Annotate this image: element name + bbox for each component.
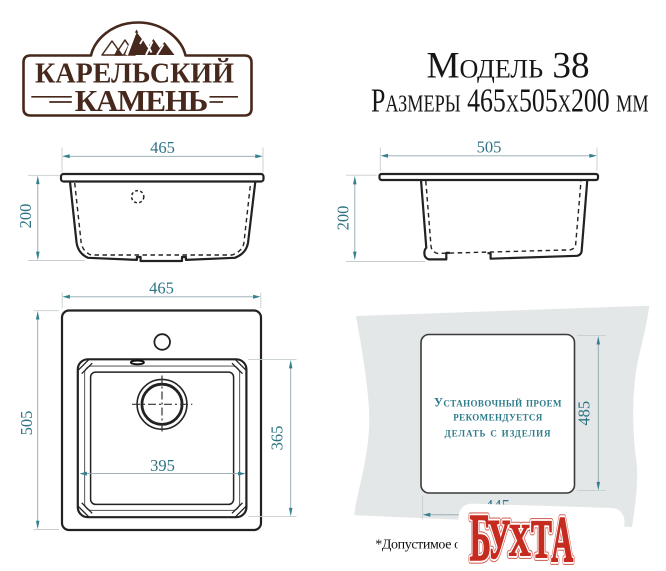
svg-text:200: 200 (16, 204, 35, 229)
svg-text:505: 505 (477, 138, 502, 157)
svg-text:395: 395 (150, 456, 175, 475)
svg-text:А: А (551, 504, 573, 571)
svg-text:Установочный проем: Установочный проем (434, 395, 562, 409)
svg-text:485: 485 (575, 401, 594, 426)
svg-text:У: У (488, 509, 511, 571)
svg-text:Т: Т (531, 509, 552, 569)
svg-text:200: 200 (334, 206, 353, 231)
svg-text:Модель 38: Модель 38 (427, 46, 590, 87)
svg-text:рекомендуется: рекомендуется (453, 410, 543, 424)
svg-text:делать с изделия: делать с изделия (445, 426, 552, 440)
svg-text:КАМЕНЬ: КАМЕНЬ (75, 83, 209, 118)
svg-text:465: 465 (149, 279, 174, 298)
svg-text:Х: Х (509, 517, 531, 566)
svg-text:465: 465 (150, 138, 175, 157)
svg-text:365: 365 (268, 426, 287, 451)
svg-text:505: 505 (17, 411, 36, 436)
svg-text:Размеры 465х505х200 мм: Размеры 465х505х200 мм (371, 83, 649, 120)
